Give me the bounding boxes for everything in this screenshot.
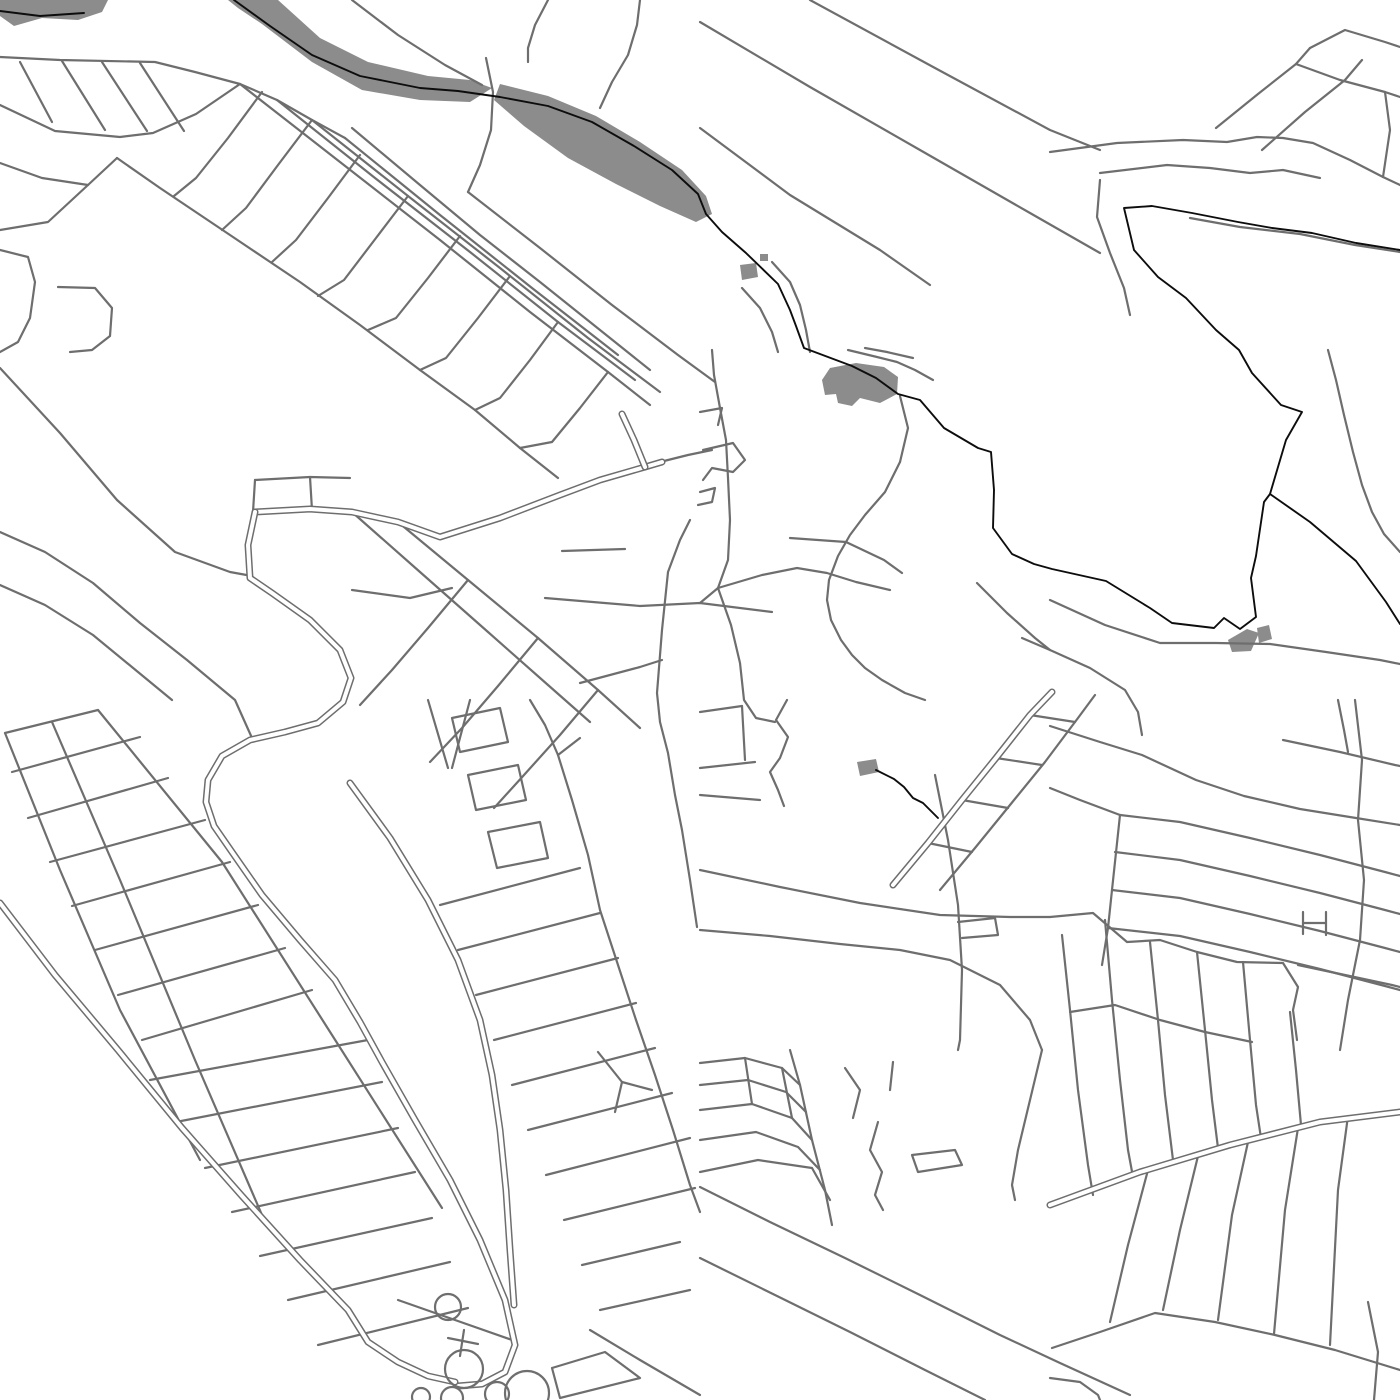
street-map-svg [0, 0, 1400, 1400]
map-viewport[interactable] [0, 0, 1400, 1400]
water-polygon [760, 254, 768, 261]
water-polygon [740, 263, 758, 280]
